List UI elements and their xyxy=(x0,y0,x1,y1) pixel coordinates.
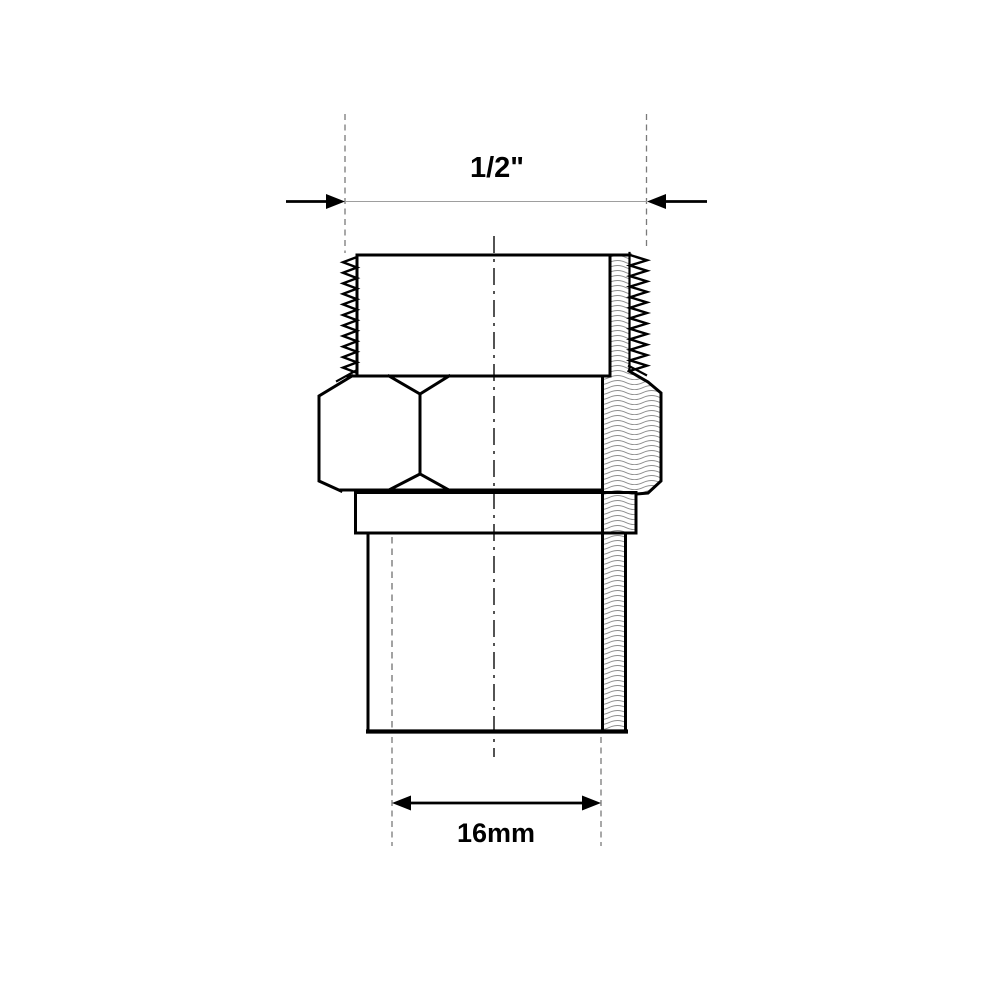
top-dimension-label: 1/2" xyxy=(470,152,524,184)
hex-chamfer-bottom xyxy=(389,474,447,490)
dimension-arrowhead-bottom-left xyxy=(392,796,411,811)
bottom-dimension-label: 16mm xyxy=(457,818,535,848)
canvas: 1/2" 16mm xyxy=(0,0,1000,1000)
hex-left-outline xyxy=(319,376,352,491)
thread-zigzag-right xyxy=(630,255,647,371)
thread-zigzag-left xyxy=(343,257,357,373)
tube-section xyxy=(366,377,628,732)
dimension-arrowhead-left xyxy=(326,194,345,209)
dimension-arrowhead-right xyxy=(647,194,666,209)
top-dimension: 1/2" xyxy=(286,114,707,253)
technical-drawing: 1/2" 16mm xyxy=(0,0,1000,1000)
hex-chamfer-top xyxy=(389,376,449,394)
dimension-arrowhead-bottom-right xyxy=(582,796,601,811)
male-thread-section xyxy=(337,253,647,381)
collar-outline xyxy=(356,493,637,534)
bottom-dimension: 16mm xyxy=(392,737,601,848)
